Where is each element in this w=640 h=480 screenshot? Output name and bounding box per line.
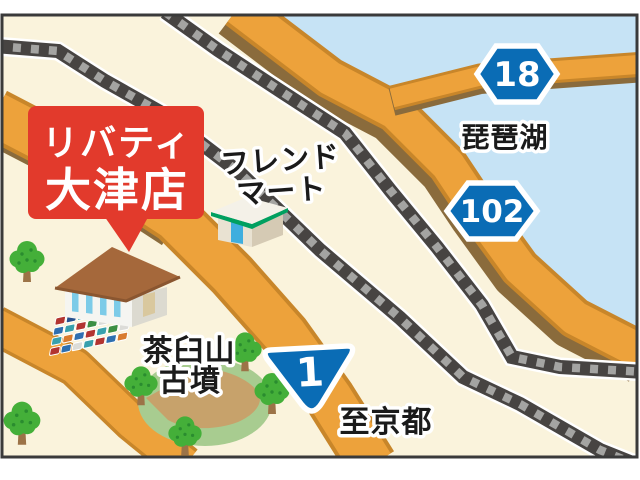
location-map: フレンド マート 琵琶湖 茶臼山 古墳 至京都 18 102 1 リバティ 大津… <box>0 0 640 480</box>
route-badge-102: 102 <box>447 183 537 239</box>
route-badge-18-number: 18 <box>493 55 540 95</box>
kofun-label-line2: 古墳 <box>159 364 221 399</box>
store-door <box>143 292 155 317</box>
friend-mart-label-line2: マート <box>235 171 327 211</box>
callout-store-name-line2: 大津店 <box>45 163 189 217</box>
route-badge-1-number: 1 <box>295 349 325 396</box>
route-badge-18: 18 <box>477 46 557 102</box>
callout-store-name-line1: リバティ <box>42 123 192 164</box>
route-badge-102-number: 102 <box>460 194 525 230</box>
location-map-screenshot: フレンド マート 琵琶湖 茶臼山 古墳 至京都 18 102 1 リバティ 大津… <box>0 0 640 480</box>
to-kyoto-label: 至京都 <box>340 405 433 440</box>
lake-biwa-label: 琵琶湖 <box>461 121 548 154</box>
